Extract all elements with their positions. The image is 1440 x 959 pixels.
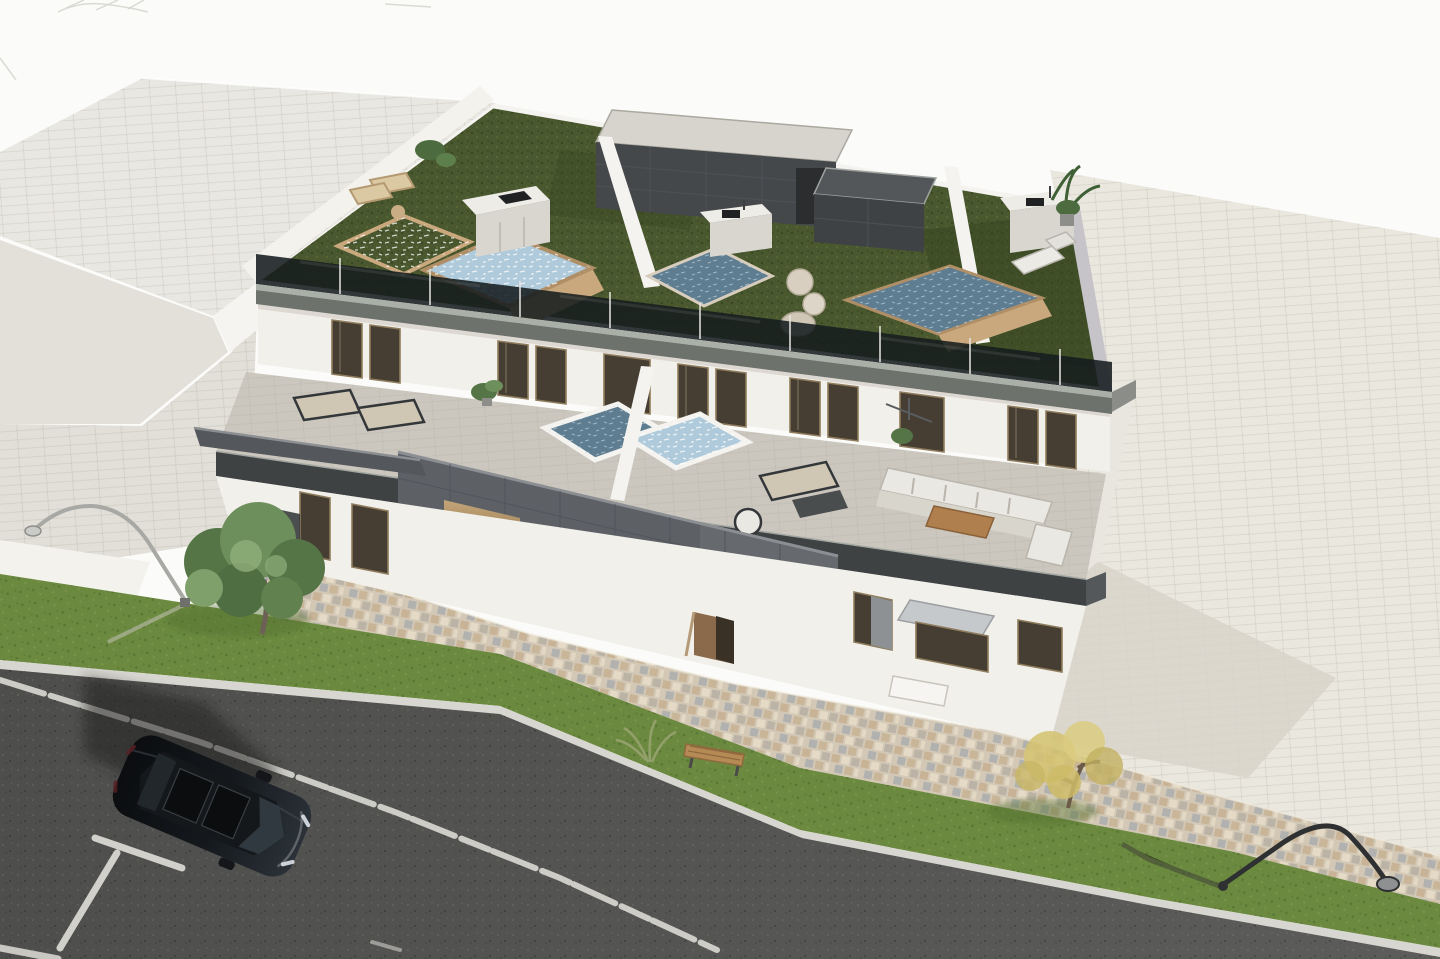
stair-bulkhead-small	[814, 168, 936, 252]
rendering-canvas	[0, 0, 1440, 959]
architectural-rendering	[0, 0, 1440, 959]
